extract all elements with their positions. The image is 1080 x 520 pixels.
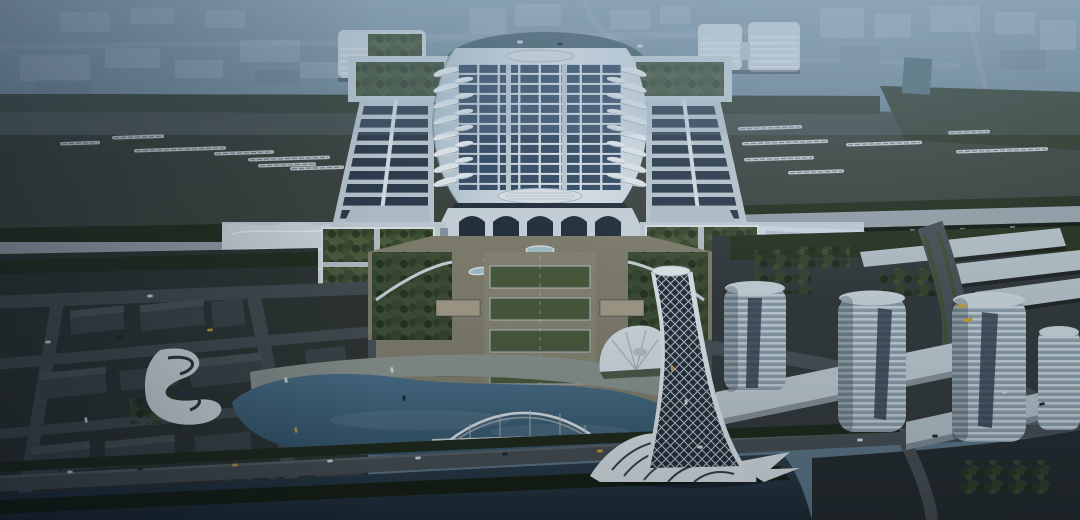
- scene-svg: [0, 0, 1080, 520]
- dusk-overlay: [0, 0, 1080, 520]
- aerial-render: [0, 0, 1080, 520]
